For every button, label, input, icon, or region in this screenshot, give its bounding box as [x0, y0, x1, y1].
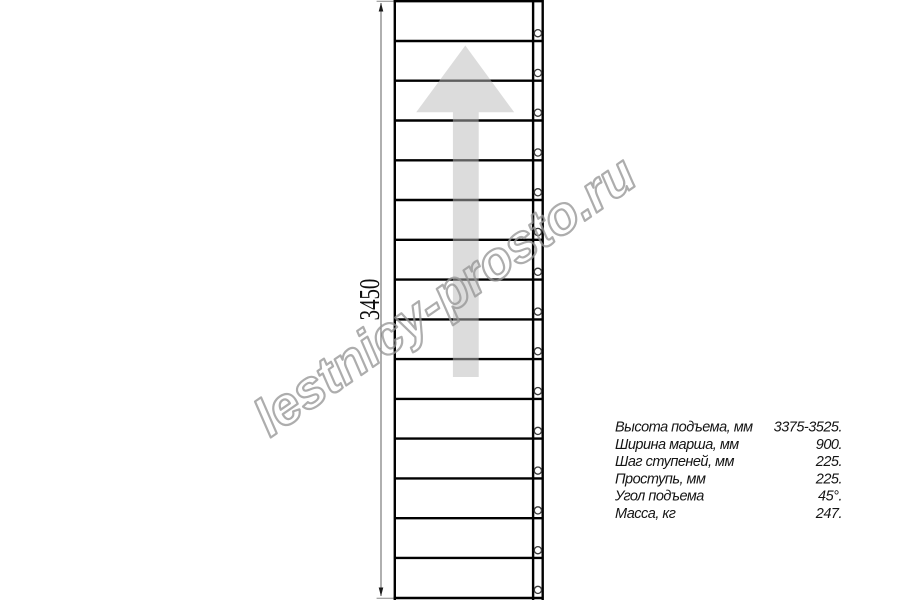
svg-text:Шаг ступеней, мм: Шаг ступеней, мм: [615, 454, 734, 470]
svg-text:247.: 247.: [815, 506, 842, 522]
svg-text:Масса, кг: Масса, кг: [615, 506, 676, 522]
svg-text:45°.: 45°.: [818, 489, 842, 505]
svg-text:225.: 225.: [815, 454, 842, 470]
svg-text:225.: 225.: [815, 471, 842, 487]
svg-text:Ширина марша, мм: Ширина марша, мм: [615, 437, 739, 453]
svg-text:Угол подъема: Угол подъема: [614, 489, 704, 505]
svg-text:Высота подъема, мм: Высота подъема, мм: [615, 420, 753, 436]
svg-text:lestnicy-prosto.ru: lestnicy-prosto.ru: [243, 144, 646, 448]
svg-text:Проступь, мм: Проступь, мм: [615, 471, 706, 487]
svg-text:900.: 900.: [816, 437, 842, 453]
svg-text:3375-3525.: 3375-3525.: [774, 420, 842, 436]
